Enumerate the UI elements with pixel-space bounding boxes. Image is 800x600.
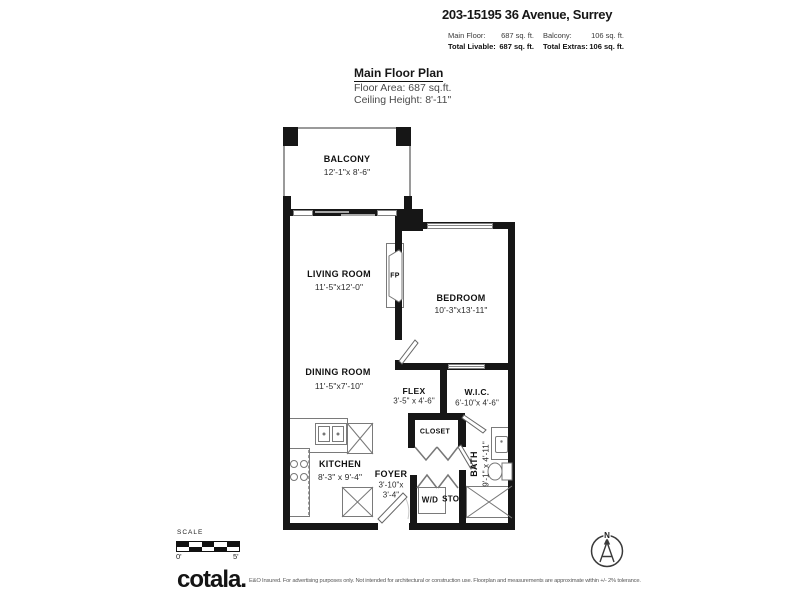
wall-bottom bbox=[283, 523, 378, 530]
window bbox=[377, 210, 397, 216]
room-label-sto: STO. bbox=[442, 495, 462, 504]
north-arrow bbox=[600, 542, 614, 562]
wall-right bbox=[508, 222, 515, 530]
total-extras-label: Total Extras: bbox=[543, 42, 588, 51]
total-extras-value: 106 sq. ft. bbox=[584, 42, 624, 51]
room-dims-balcony: 12'-1"x 8'-6" bbox=[324, 167, 371, 177]
scale-label: SCALE bbox=[177, 529, 203, 536]
wall-left bbox=[283, 209, 290, 530]
sink-basin bbox=[332, 426, 344, 442]
room-label-closet: CLOSET bbox=[420, 429, 450, 436]
wall-wd-left bbox=[410, 475, 417, 523]
main-floor-value: 687 sq. ft. bbox=[494, 31, 534, 40]
scale-segment bbox=[189, 547, 201, 552]
room-dims-foyer-2: 3'-4" bbox=[383, 491, 399, 500]
room-dims-bath: 9'-1" x 4'-11" bbox=[482, 441, 491, 487]
room-label-living: LIVING ROOM bbox=[307, 269, 371, 279]
counter-edge bbox=[308, 450, 309, 515]
bathtub bbox=[466, 486, 512, 518]
plan-title: Main Floor Plan bbox=[354, 66, 443, 82]
room-label-bath: BATH bbox=[469, 451, 479, 477]
compass-north-label: N bbox=[604, 531, 610, 540]
entry-door-arc bbox=[403, 494, 409, 519]
wall-opening bbox=[448, 364, 485, 369]
scale-segment bbox=[214, 547, 226, 552]
wall bbox=[283, 127, 298, 146]
room-dims-wic: 6'-10"x 4'-6" bbox=[455, 399, 499, 408]
scale-segment bbox=[227, 542, 239, 547]
wall-closet-top bbox=[408, 413, 465, 420]
room-dims-bedroom: 10'-3"x13'-11" bbox=[434, 305, 487, 315]
wall bbox=[404, 196, 412, 210]
scale-start: 0' bbox=[176, 552, 182, 561]
disclaimer-text: E&O Insured. For advertising purposes on… bbox=[249, 578, 641, 584]
sliding-door bbox=[341, 214, 375, 216]
wall-bottom bbox=[409, 523, 515, 530]
bifold-door bbox=[415, 447, 437, 460]
room-label-wic: W.I.C. bbox=[465, 387, 490, 397]
room-label-wd: W/D bbox=[422, 496, 438, 505]
fireplace-label: FP bbox=[390, 273, 400, 280]
page-title: 203-15195 36 Avenue, Surrey bbox=[442, 7, 612, 22]
room-label-bedroom: BEDROOM bbox=[436, 293, 485, 303]
wall-closet-right bbox=[458, 420, 466, 447]
window bbox=[293, 210, 313, 216]
room-dims-living: 11'-5"x12'-0" bbox=[315, 282, 363, 292]
total-livable-label: Total Livable: bbox=[448, 42, 496, 51]
sink-basin bbox=[318, 426, 330, 442]
floor-plan-page: 203-15195 36 Avenue, Surrey Main Floor: … bbox=[0, 0, 800, 600]
room-dims-dining: 11'-5"x7'-10" bbox=[315, 381, 363, 391]
window-bedroom bbox=[427, 223, 493, 229]
wall bbox=[396, 127, 411, 146]
wall-closet-left bbox=[408, 420, 415, 448]
kitchen-counter bbox=[288, 448, 310, 517]
ceiling-height-text: Ceiling Height: 8'-11" bbox=[354, 94, 451, 106]
balcony-area-value: 106 sq. ft. bbox=[584, 31, 624, 40]
fridge-box bbox=[342, 487, 373, 517]
room-label-foyer: FOYER bbox=[375, 469, 408, 479]
scale-bar bbox=[176, 541, 240, 552]
sliding-door bbox=[315, 211, 349, 213]
total-livable-value: 687 sq. ft. bbox=[494, 42, 534, 51]
wall bbox=[283, 196, 291, 210]
compass: N bbox=[588, 528, 626, 570]
scale-end: 5' bbox=[233, 552, 239, 561]
vanity-sink bbox=[495, 436, 508, 453]
room-label-kitchen: KITCHEN bbox=[319, 459, 361, 469]
brand-logo: cotala. bbox=[177, 566, 246, 594]
room-label-balcony: BALCONY bbox=[324, 154, 371, 164]
floor-area-text: Floor Area: 687 sq.ft. bbox=[354, 82, 451, 94]
room-label-dining: DINING ROOM bbox=[305, 367, 370, 377]
room-dims-kitchen: 8'-3" x 9'-4" bbox=[318, 472, 362, 482]
room-dims-foyer-1: 3'-10"x bbox=[378, 481, 403, 490]
room-label-flex: FLEX bbox=[403, 386, 426, 396]
bifold-door bbox=[437, 447, 458, 460]
appliance-box bbox=[347, 423, 373, 454]
scale-segment bbox=[202, 542, 214, 547]
main-floor-label: Main Floor: bbox=[448, 31, 486, 40]
scale-segment bbox=[177, 542, 189, 547]
room-dims-flex: 3'-5" x 4'-6" bbox=[393, 397, 435, 406]
balcony-area-label: Balcony: bbox=[543, 31, 572, 40]
